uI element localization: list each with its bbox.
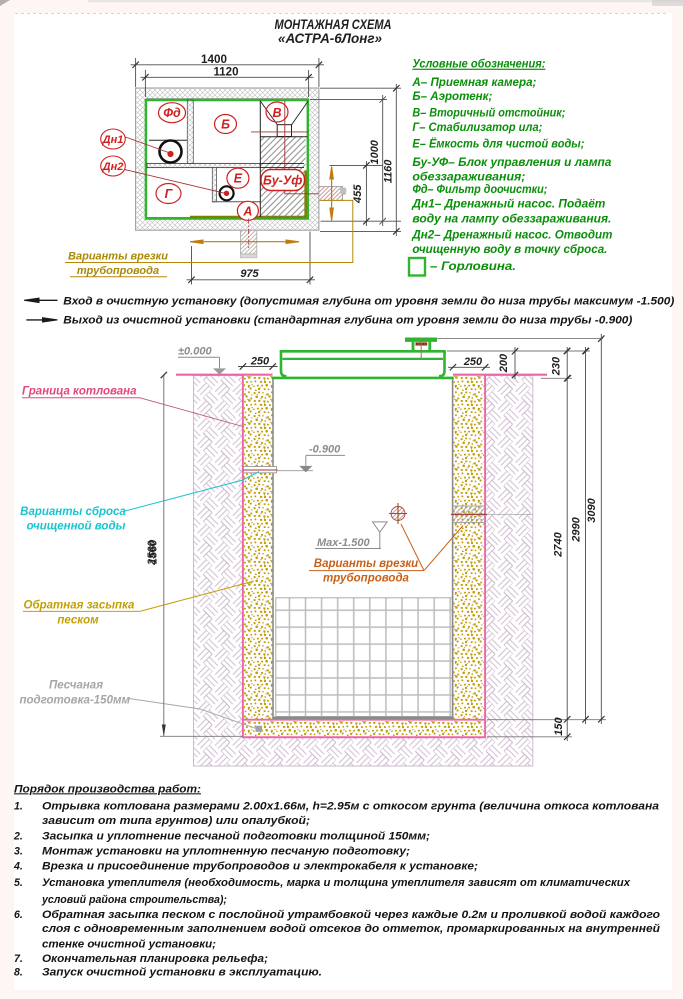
svg-text:Фд– Фильтр доочистки;: Фд– Фильтр доочистки;	[412, 182, 547, 196]
svg-text:7.: 7.	[14, 953, 23, 965]
svg-text:Обратная засыпка песком с посл: Обратная засыпка песком с послойной утра…	[42, 909, 661, 921]
svg-text:Варианты сброса: Варианты сброса	[20, 506, 126, 518]
svg-text:Б: Б	[221, 118, 230, 132]
svg-text:Е– Ёмкость для чистой воды;: Е– Ёмкость для чистой воды;	[412, 135, 584, 150]
svg-text:-0.900: -0.900	[309, 443, 341, 455]
svg-text:250: 250	[463, 356, 483, 368]
svg-text:Дн2– Дренажный насос. Отводит: Дн2– Дренажный насос. Отводит	[411, 228, 612, 242]
svg-text:очищенной воды: очищенной воды	[27, 520, 126, 532]
svg-text:150: 150	[553, 716, 565, 735]
svg-text:230: 230	[551, 356, 563, 376]
svg-text:трубопровода: трубопровода	[77, 265, 159, 277]
svg-text:2740: 2740	[553, 531, 565, 557]
svg-text:Варианты врезки: Варианты врезки	[314, 558, 418, 570]
svg-text:Песчаная: Песчаная	[49, 679, 103, 691]
svg-text:975: 975	[240, 268, 259, 280]
svg-text:Окончательная планировка релье: Окончательная планировка рельефа;	[42, 953, 268, 965]
svg-text:Дн2: Дн2	[102, 161, 124, 173]
svg-text:Порядок производства работ:: Порядок производства работ:	[14, 783, 201, 795]
svg-text:– Горловина.: – Горловина.	[430, 259, 516, 273]
svg-text:Фд: Фд	[163, 106, 181, 120]
svg-text:В– Вторичный отстойник;: В– Вторичный отстойник;	[412, 105, 565, 119]
svg-text:1120: 1120	[214, 65, 239, 79]
svg-text:Варианты врезки: Варианты врезки	[68, 250, 168, 262]
svg-text:Е: Е	[234, 172, 243, 186]
svg-text:Вход в очистную установку (доп: Вход в очистную установку (допустимая гл…	[63, 295, 675, 307]
svg-text:Max-1.500: Max-1.500	[317, 537, 370, 549]
svg-text:6.: 6.	[14, 909, 23, 921]
svg-text:А– Приемная камера;: А– Приемная камера;	[411, 75, 536, 89]
svg-text:подготовка-150мм: подготовка-150мм	[20, 694, 131, 706]
svg-text:Установка утеплителя (необходи: Установка утеплителя (необходимость, мар…	[42, 877, 631, 889]
svg-text:Бу-Уф: Бу-Уф	[263, 174, 302, 188]
svg-text:Засыпка и уплотнение песчаной: Засыпка и уплотнение песчаной подготовки…	[42, 831, 430, 843]
svg-text:Бу-УФ– Блок управления и лампа: Бу-УФ– Блок управления и лампа	[412, 155, 611, 169]
svg-text:зависит от типа грунтов) или о: зависит от типа грунтов) или опалубкой;	[42, 815, 310, 827]
svg-text:2560: 2560	[146, 540, 158, 566]
svg-text:трубопровода: трубопровода	[323, 572, 410, 584]
svg-text:В: В	[272, 106, 281, 120]
svg-text:Дн1: Дн1	[102, 134, 124, 146]
svg-text:250: 250	[250, 355, 270, 367]
svg-text:А: А	[242, 204, 252, 218]
svg-text:1000: 1000	[369, 139, 381, 164]
svg-text:воду на лампу обеззараживания.: воду на лампу обеззараживания.	[412, 212, 611, 226]
svg-text:Отрывка котлована размерами 2.: Отрывка котлована размерами 2.00х1.66м, …	[42, 800, 659, 812]
svg-text:1160: 1160	[382, 159, 394, 184]
svg-text:Монтаж установки на уплотненну: Монтаж установки на уплотненную песчаную…	[42, 846, 410, 858]
svg-text:4.: 4.	[13, 861, 23, 873]
svg-text:МОНТАЖНАЯ СХЕМА: МОНТАЖНАЯ СХЕМА	[275, 17, 392, 32]
svg-text:Запуск очистной установки в эк: Запуск очистной установки в эксплуатацию…	[42, 966, 322, 978]
svg-text:песком: песком	[57, 615, 99, 627]
svg-text:стенке очистной установки;: стенке очистной установки;	[42, 939, 216, 951]
svg-text:2990: 2990	[571, 516, 583, 542]
svg-text:Граница котлована: Граница котлована	[22, 386, 137, 398]
svg-text:Б– Аэротенк;: Б– Аэротенк;	[412, 89, 492, 103]
svg-text:±0.000: ±0.000	[178, 346, 212, 358]
svg-text:очищенную воду в точку сброса.: очищенную воду в точку сброса.	[412, 242, 607, 256]
svg-text:8.: 8.	[14, 966, 23, 978]
svg-text:Условные обозначения:: Условные обозначения:	[412, 57, 545, 71]
svg-text:3.: 3.	[14, 846, 23, 858]
svg-text:455: 455	[352, 184, 364, 204]
svg-text:условий района строительства);: условий района строительства);	[41, 894, 227, 906]
svg-text:«АСТРА-6Лонг»: «АСТРА-6Лонг»	[278, 31, 382, 46]
svg-text:1.: 1.	[14, 800, 23, 812]
svg-text:Г: Г	[165, 187, 174, 201]
svg-text:5.: 5.	[14, 877, 23, 889]
svg-text:3090: 3090	[586, 497, 598, 522]
svg-text:Выход из очистной установки (с: Выход из очистной установки (стандартная…	[63, 315, 633, 327]
svg-text:Дн1– Дренажный насос. Подаёт: Дн1– Дренажный насос. Подаёт	[411, 197, 605, 211]
svg-text:Врезка и присоединение трубопр: Врезка и присоединение трубопроводов и э…	[42, 861, 478, 873]
svg-text:слоя с одновременным заполнени: слоя с одновременным заполнением водой о…	[42, 923, 661, 935]
svg-text:Обратная засыпка: Обратная засыпка	[24, 600, 135, 612]
svg-text:Г– Стабилизатор ила;: Г– Стабилизатор ила;	[412, 120, 542, 134]
svg-text:200: 200	[498, 353, 510, 373]
svg-text:2.: 2.	[13, 831, 23, 843]
